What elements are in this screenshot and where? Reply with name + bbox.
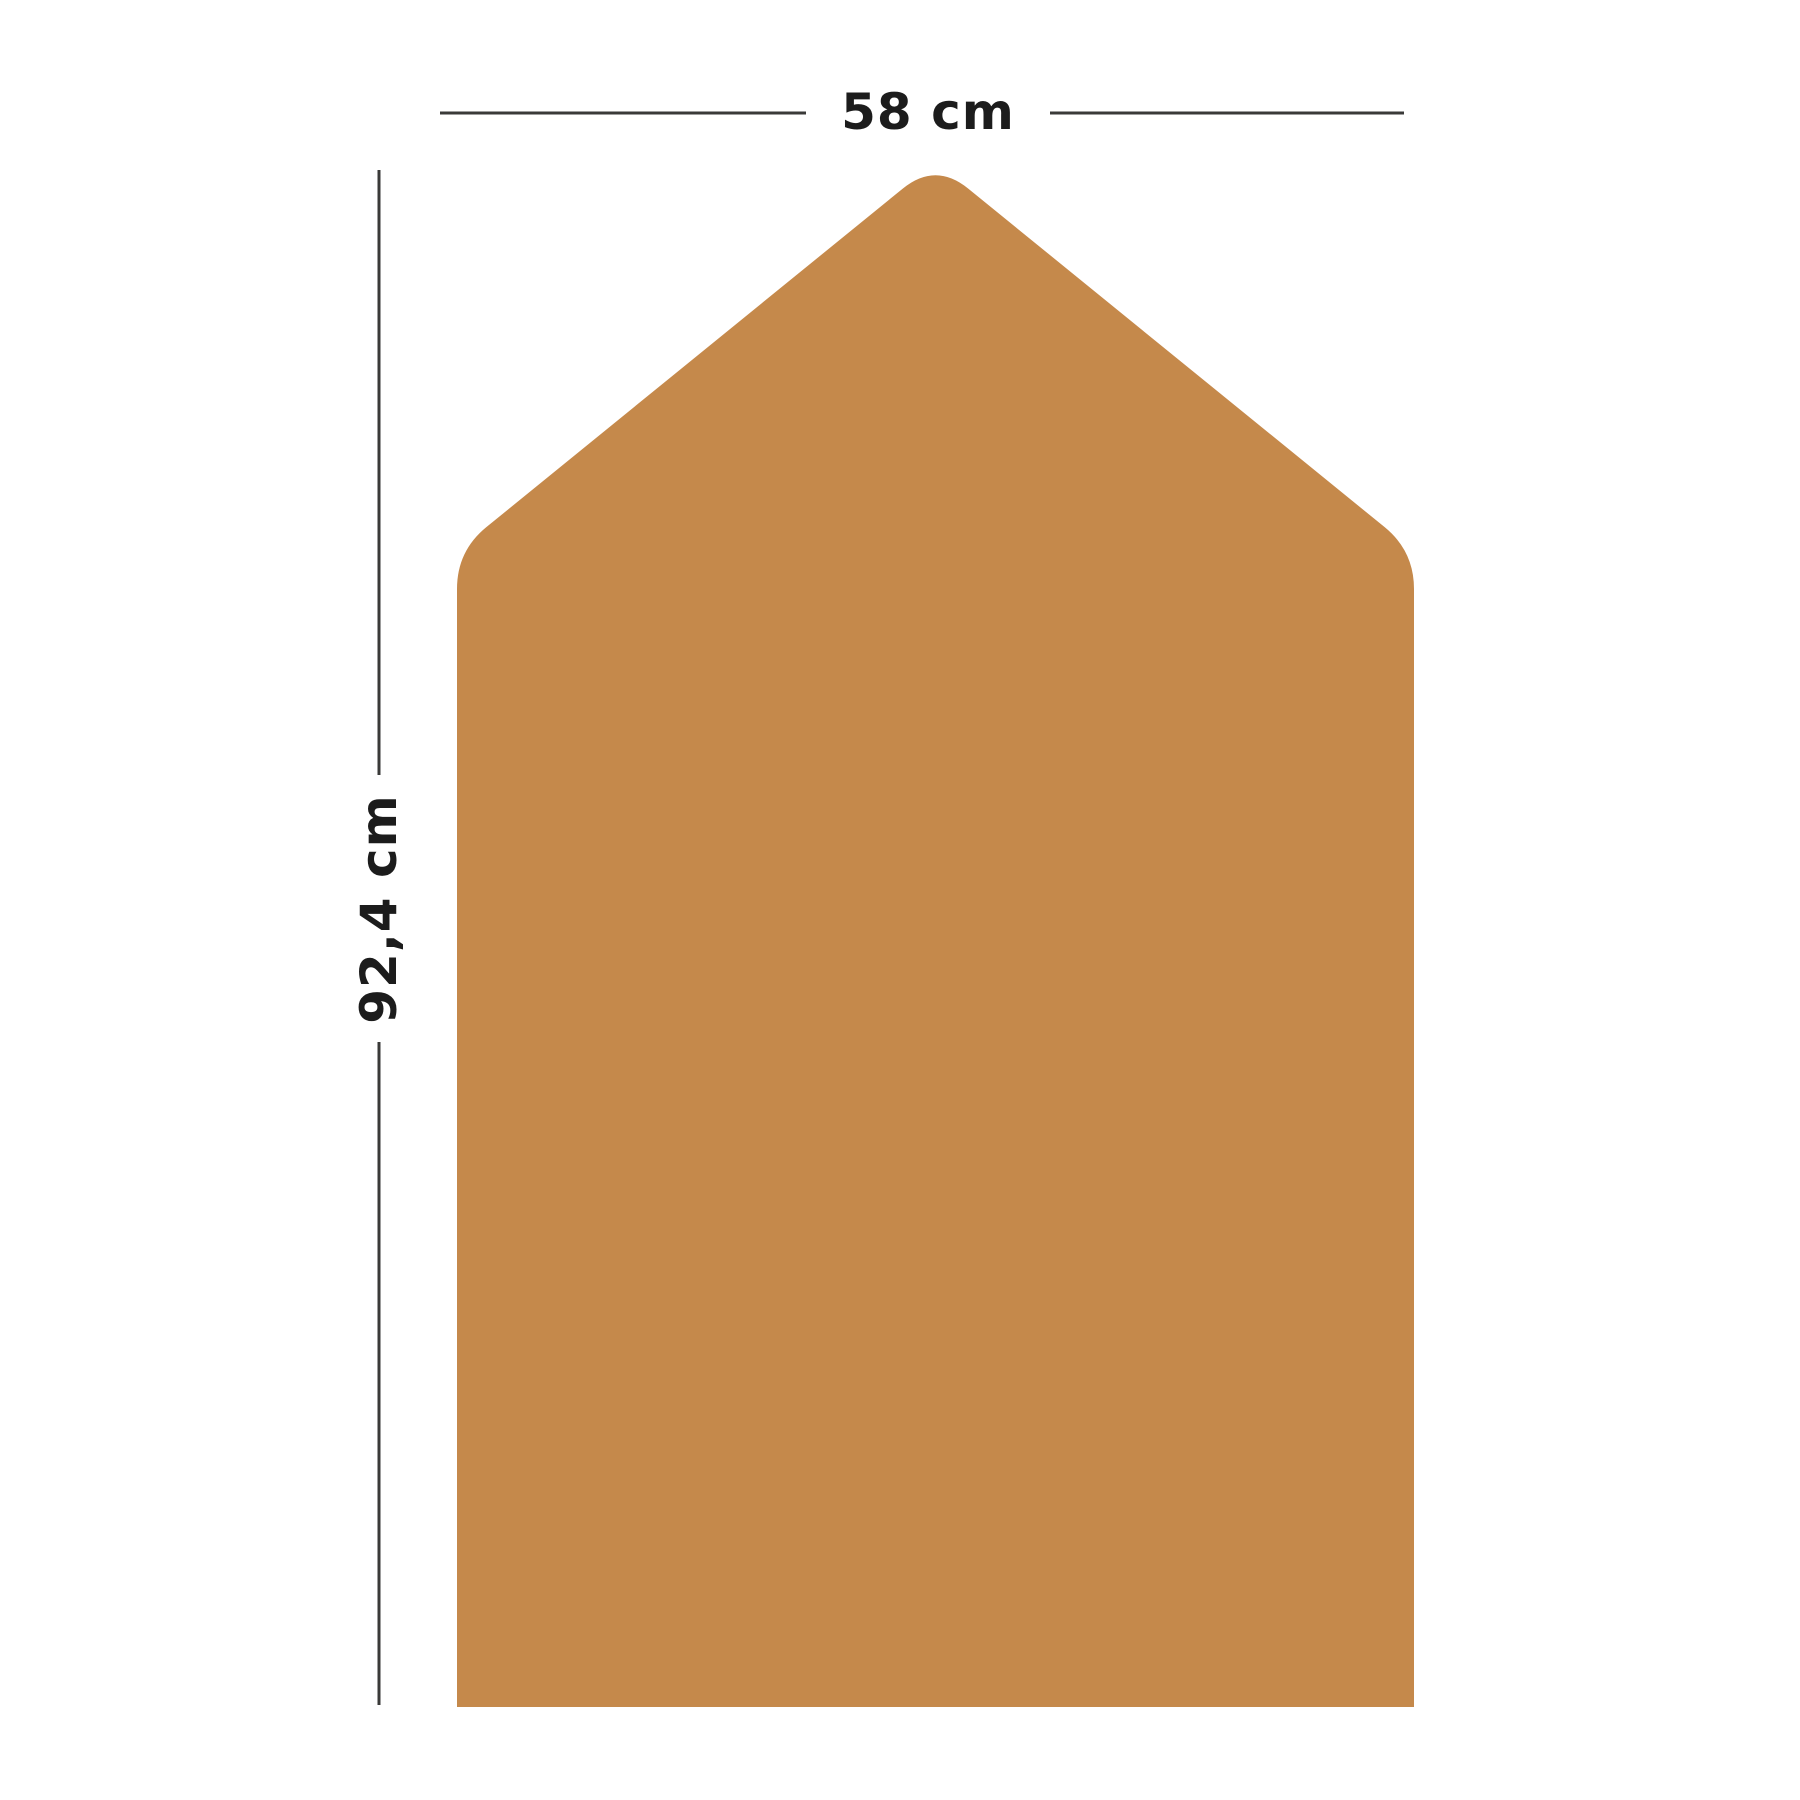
panel-shape-group: [457, 175, 1414, 1707]
width-dimension-label: 58 cm: [841, 83, 1015, 141]
height-dimension-label: 92,4 cm: [350, 794, 408, 1024]
panel-shape: [457, 175, 1414, 1707]
diagram-stage: 58 cm 92,4 cm: [0, 0, 1800, 1800]
height-dimension: 92,4 cm: [350, 170, 408, 1705]
panel-dimension-diagram: 58 cm 92,4 cm: [0, 0, 1800, 1800]
width-dimension: 58 cm: [440, 83, 1404, 141]
